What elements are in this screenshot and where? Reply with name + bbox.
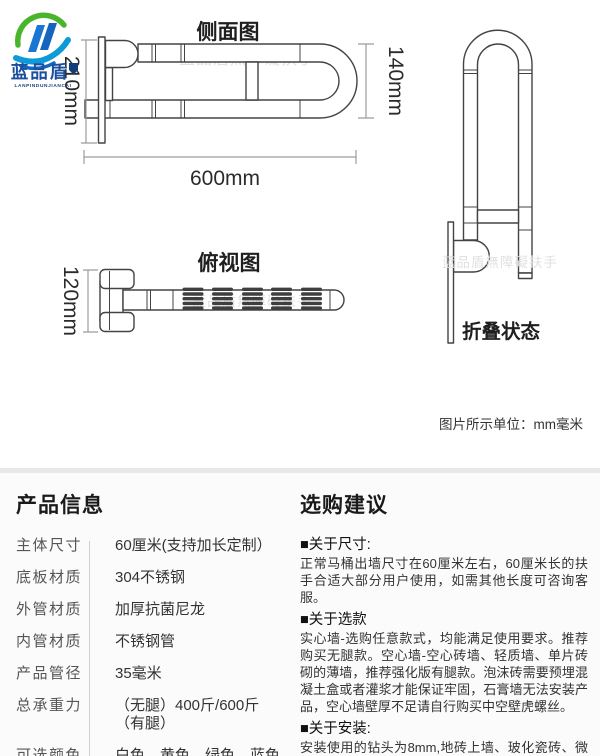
grip-pad (212, 288, 233, 310)
top-view-title: 俯视图 (198, 251, 261, 275)
row-label: 可选颜色 (16, 747, 89, 756)
dimension-600-label: 600mm (190, 167, 260, 190)
side-view-strut (246, 62, 258, 100)
row-label: 产品管径 (16, 665, 89, 683)
folded-tube-end-cap (519, 273, 533, 279)
brand-subname: LANPINDUNJIANCAI (14, 83, 71, 89)
side-view-title: 侧面图 (197, 20, 260, 44)
grip-pad (242, 288, 263, 310)
row-label: 总承重力 (16, 697, 89, 715)
suggestion-body: 安装使用的钻头为8mm,地砖上墙、玻化瓷砖、微晶砖、全瓷砖请使用玻璃钻头打穿后再… (300, 739, 588, 756)
table-row: 主体尺寸 60厘米(支持加长定制） (16, 537, 286, 555)
product-info-title: 产品信息 (16, 489, 286, 519)
dimension-120-lines (83, 270, 98, 332)
folded-strut (478, 210, 519, 223)
suggestions-panel: 选购建议 ■关于尺寸: 正常马桶出墙尺寸在60厘米左右，60厘米长的扶手合适大部… (300, 485, 592, 756)
folded-view: 蓝品盾無障礙扶手 折叠状态 (442, 30, 558, 343)
product-info-panel: 产品信息 主体尺寸 60厘米(支持加长定制） 底板材质 304不锈钢 外管材质 … (16, 485, 286, 756)
suggestion-heading: ■关于选款 (300, 612, 588, 628)
folded-view-watermark: 蓝品盾無障礙扶手 (442, 255, 558, 270)
folded-wall-plate (448, 222, 454, 343)
row-label: 内管材质 (16, 633, 89, 651)
table-row: 内管材质 不锈钢管 (16, 633, 286, 651)
row-value: 60厘米(支持加长定制） (89, 537, 272, 555)
grip-pad (183, 288, 204, 310)
row-value: （无腿）400斤/600斤（有腿） (89, 697, 286, 733)
units-note: 图片所示单位：mm毫米 (439, 416, 583, 432)
folded-view-label: 折叠状态 (462, 320, 541, 343)
suggestion-section: ■关于安装: 安装使用的钻头为8mm,地砖上墙、玻化瓷砖、微晶砖、全瓷砖请使用玻… (300, 721, 588, 756)
shield-mark-icon (69, 63, 78, 75)
logo-mark-icon: 蓝品盾 LANPINDUNJIANCAI (6, 8, 82, 90)
brand-logo: 蓝品盾 LANPINDUNJIANCAI (6, 8, 82, 90)
row-label: 外管材质 (16, 601, 89, 619)
suggestion-heading: ■关于尺寸: (300, 537, 588, 553)
row-label: 底板材质 (16, 569, 89, 587)
product-info-table: 主体尺寸 60厘米(支持加长定制） 底板材质 304不锈钢 外管材质 加厚抗菌尼… (16, 537, 286, 756)
suggestion-section: ■关于尺寸: 正常马桶出墙尺寸在60厘米左右，60厘米长的扶手合适大部分用户使用… (300, 537, 588, 606)
suggestion-body: 正常马桶出墙尺寸在60厘米左右，60厘米长的扶手合适大部分用户使用，如需其他长度… (300, 555, 588, 606)
grip-pad (301, 288, 322, 310)
suggestions-title: 选购建议 (300, 489, 588, 519)
row-value: 304不锈钢 (89, 569, 185, 587)
dimension-140-label: 140mm (384, 46, 407, 116)
side-view-pivot-housing (106, 41, 139, 68)
top-view-bracket-top-flange (100, 270, 134, 289)
grip-pad (271, 288, 292, 310)
dimension-600-lines (84, 150, 356, 164)
table-row: 可选颜色 白色、黄色、绿色、蓝色 (16, 747, 286, 756)
dimension-diagram: 侧面图 蓝品盾無障礙扶手 (0, 0, 600, 455)
row-value: 35毫米 (89, 665, 162, 683)
info-section: 产品信息 主体尺寸 60厘米(支持加长定制） 底板材质 304不锈钢 外管材质 … (0, 468, 600, 756)
table-row: 产品管径 35毫米 (16, 665, 286, 683)
folded-handle-outline (464, 30, 533, 273)
row-value: 白色、黄色、绿色、蓝色 (89, 747, 280, 756)
suggestion-heading: ■关于安装: (300, 721, 588, 737)
top-view: 俯视图 蓝品盾無障礙扶手 (59, 251, 344, 336)
table-row: 底板材质 304不锈钢 (16, 569, 286, 587)
row-value: 不锈钢管 (89, 633, 175, 651)
dimension-120-label: 120mm (59, 266, 82, 336)
row-value: 加厚抗菌尼龙 (89, 601, 205, 619)
top-view-bracket-bottom-flange (100, 313, 134, 332)
side-view: 侧面图 蓝品盾無障礙扶手 (60, 20, 407, 190)
side-view-hinge-link (106, 68, 113, 101)
table-row: 外管材质 加厚抗菌尼龙 (16, 601, 286, 619)
logo-blue-wave (16, 40, 68, 62)
product-detail-page: 侧面图 蓝品盾無障礙扶手 (0, 0, 600, 756)
side-view-wall-plate (99, 37, 106, 143)
row-label: 主体尺寸 (16, 537, 89, 555)
table-row: 总承重力 （无腿）400斤/600斤（有腿） (16, 697, 286, 733)
brand-name: 蓝品盾 (11, 62, 70, 82)
suggestion-section: ■关于选款 实心墙-选购任意款式，均能满足使用要求。推荐购买无腿款。空心墙-空心… (300, 612, 588, 715)
diagram-canvas: 侧面图 蓝品盾無障礙扶手 (0, 0, 600, 455)
suggestion-body: 实心墙-选购任意款式，均能满足使用要求。推荐购买无腿款。空心墙-空心砖墙、轻质墙… (300, 630, 588, 715)
dimension-140-lines (358, 44, 374, 118)
